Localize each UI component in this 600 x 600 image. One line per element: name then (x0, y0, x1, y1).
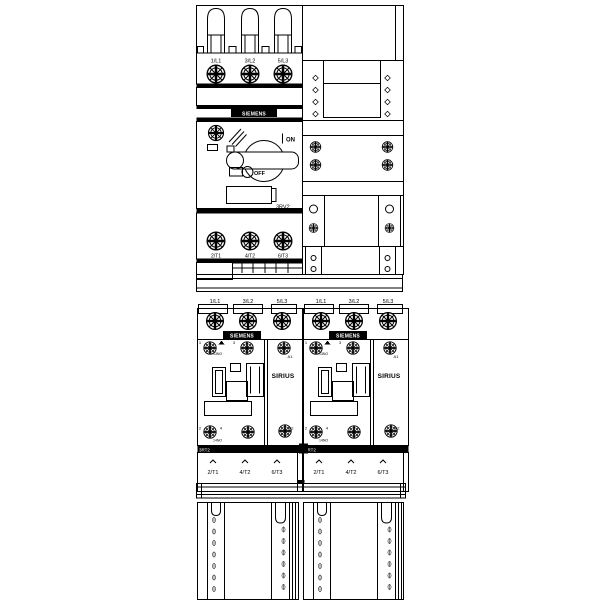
coil-terminal-screw-icon (278, 342, 290, 354)
marker-chevron-icon (274, 460, 280, 463)
rail-slot-icon (212, 563, 215, 568)
mounting-hole-icon (385, 99, 391, 105)
terminal-label: 5/L3 (278, 59, 289, 65)
aux-terminal-label: 13NO (319, 352, 328, 356)
drawing-canvas: 1/L1 3/L2 5/L3 SIEMENS ON (0, 0, 600, 600)
busbar-prong (242, 9, 259, 54)
rail-slot-icon (282, 550, 285, 555)
marker-triangle-icon (325, 341, 331, 345)
breaker-line-terminals: 1/L1 3/L2 5/L3 (197, 53, 303, 84)
busbar-tap-cover (197, 6, 303, 54)
terminal-screw-icon (241, 232, 259, 250)
mounting-hole-icon (385, 111, 391, 117)
label-field (311, 402, 358, 416)
terminal-label: 4/T2 (239, 470, 250, 476)
pole-mark: 4 (220, 426, 223, 431)
mounting-plate-right (303, 6, 404, 275)
marker-chevron-icon (316, 460, 322, 463)
terminal-label: 2/T1 (207, 470, 218, 476)
aux-terminal-screw-icon (242, 426, 254, 438)
terminal-screw-icon (207, 232, 225, 250)
terminal-screw-icon (274, 313, 291, 330)
rail-slot-icon (212, 575, 215, 580)
aux-terminal-screw-icon (241, 342, 253, 354)
rail-slot-icon (212, 517, 215, 522)
aux-terminal-label: 14NO (213, 439, 222, 443)
coil-terminal-label: A1 (394, 354, 400, 359)
mounting-hole-icon (385, 75, 391, 81)
housing-moldings (213, 364, 264, 401)
aux-terminal-screw-icon (204, 426, 216, 438)
rail-slot-icon (212, 552, 215, 557)
rail-slot-icon (212, 586, 215, 591)
aux-terminal-label: 14NO (319, 439, 328, 443)
circuit-breaker: 1/L1 3/L2 5/L3 SIEMENS ON (197, 53, 303, 263)
rail-slot-icon (282, 584, 285, 589)
rail-screw-icon (385, 224, 394, 233)
off-label: OFF (254, 171, 266, 177)
marker-chevron-icon (348, 460, 354, 463)
brand-badge-label: SIEMENS (230, 333, 254, 339)
mounting-hole-icon (313, 87, 319, 93)
siemens-badge: SIEMENS (231, 109, 277, 117)
contactor-load-terminals: 2/T1 4/T2 6/T3 (304, 453, 409, 492)
pole-mark: 1 (199, 340, 202, 345)
rail-slot-icon (282, 527, 285, 532)
pole-mark: 4 (326, 426, 329, 431)
fixing-screw-icon (382, 142, 393, 153)
terminal-screw-icon (240, 313, 257, 330)
pole-mark: 2 (199, 426, 202, 431)
marker-chevron-icon (210, 460, 216, 463)
rail-hole-icon (385, 267, 390, 272)
setting-scale-mark (229, 129, 247, 147)
marker-chevron-icon (380, 460, 386, 463)
marker-chevron-icon (242, 460, 248, 463)
brand-badge-label: SIEMENS (336, 333, 360, 339)
terminal-label: 4/T2 (245, 254, 255, 260)
rail-screw-icon (309, 224, 318, 233)
rail-hole-icon (311, 256, 316, 261)
coil-terminal-label: A2 (289, 426, 295, 431)
pole-mark: 1 (305, 340, 308, 345)
marker-triangle-icon (219, 341, 225, 345)
terminal-screw-icon (207, 65, 225, 83)
series-label: SIRIUS (378, 373, 401, 380)
fixing-screw-icon (310, 160, 321, 171)
rail-hole-icon (310, 205, 318, 213)
reset-button (208, 145, 218, 151)
fixing-screw-icon (310, 142, 321, 153)
rail-hole-icon (311, 267, 316, 272)
busbar-prong (275, 9, 292, 54)
mounting-hole-icon (313, 99, 319, 105)
terminal-screw-icon (241, 65, 259, 83)
contactor-load-terminals: 2/T1 4/T2 6/T3 (198, 453, 303, 492)
aux-terminal-screw-icon (310, 426, 322, 438)
rail-clip (299, 444, 308, 454)
pole-mark: 2 (305, 426, 308, 431)
brand-badge-label: SIEMENS (242, 111, 266, 117)
rail-slot-icon (282, 538, 285, 543)
perforated-rails (314, 503, 402, 600)
contactor: 1/L1 3/L2 5/L3 SIEMENS 1 3 13NO A1 SIRIU… (304, 299, 409, 492)
contactor-model-label: 3RT2 (199, 448, 210, 453)
label-field (227, 187, 272, 204)
rail-slot-icon (212, 540, 215, 545)
siemens-badge: SIEMENS (223, 331, 261, 339)
terminal-screw-icon (346, 313, 363, 330)
pole-mark: 3 (233, 340, 236, 345)
housing-moldings (319, 364, 370, 401)
fixing-screw-icon (382, 160, 393, 171)
siemens-badge: SIEMENS (329, 331, 367, 339)
terminal-label: 2/T1 (211, 254, 221, 260)
mounting-hole-icon (385, 87, 391, 93)
aux-terminal-label: 13NO (213, 352, 222, 356)
series-label: SIRIUS (272, 373, 295, 380)
terminal-screw-icon (274, 65, 292, 83)
terminal-screw-icon (380, 313, 397, 330)
terminal-label: 2/T1 (313, 470, 324, 476)
bottom-cross-strip (197, 480, 406, 498)
coil-terminal-label: A1 (288, 354, 294, 359)
terminal-label: 6/T3 (271, 470, 282, 476)
busbar-adapter (197, 263, 403, 292)
terminal-label: 1/L1 (211, 59, 222, 65)
terminal-label: 3/L2 (245, 59, 256, 65)
pole-mark: 3 (339, 340, 342, 345)
contactor: 1/L1 3/L2 5/L3 SIEMENS 1 3 13NO A1 SIRIU… (198, 299, 303, 492)
terminal-screw-icon (207, 313, 224, 330)
terminal-screw-icon (313, 313, 330, 330)
breaker-load-terminals: 2/T1 4/T2 6/T3 (197, 213, 303, 260)
aux-terminal-screw-icon (347, 342, 359, 354)
on-label: ON (286, 138, 295, 144)
bottom-rail-panels (198, 503, 404, 600)
rail-slot-icon (212, 529, 215, 534)
terminal-screw-icon (274, 232, 292, 250)
busbar-prong (208, 9, 225, 54)
coil-terminal-label: A2 (395, 426, 401, 431)
cover-screw-icon (208, 125, 223, 140)
aux-terminal-screw-icon (348, 426, 360, 438)
rail-slot-icon (282, 573, 285, 578)
rail-hole-icon (385, 256, 390, 261)
label-field (205, 402, 252, 416)
mounting-hole-icon (313, 75, 319, 81)
mounting-hole-icon (313, 111, 319, 117)
perforated-rails (208, 503, 296, 600)
starter-assembly-drawing: 1/L1 3/L2 5/L3 SIEMENS ON (0, 0, 600, 600)
terminal-label: 6/T3 (278, 254, 288, 260)
rail-hole-icon (386, 205, 394, 213)
coil-terminal-screw-icon (384, 342, 396, 354)
terminal-label: 6/T3 (377, 470, 388, 476)
rail-slot-icon (282, 561, 285, 566)
terminal-label: 4/T2 (345, 470, 356, 476)
